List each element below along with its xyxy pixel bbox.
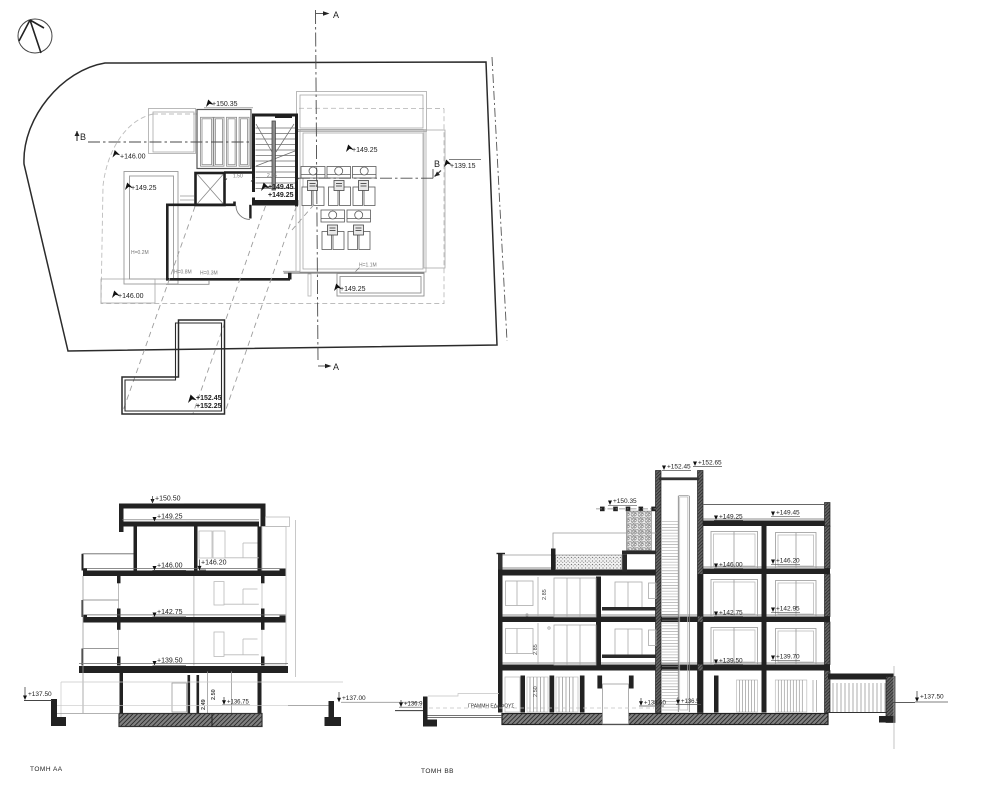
svg-text:+152.65: +152.65 <box>698 460 722 467</box>
svg-text:+142.75: +142.75 <box>719 610 743 617</box>
svg-text:+142.95: +142.95 <box>776 606 800 613</box>
svg-text:+150.50: +150.50 <box>155 496 181 503</box>
svg-text:+149.25: +149.25 <box>268 192 294 199</box>
svg-text:+146.00: +146.00 <box>157 563 183 570</box>
svg-text:2.55: 2.55 <box>267 173 277 179</box>
svg-text:+137.00: +137.00 <box>342 695 366 702</box>
svg-text:+146.00: +146.00 <box>120 154 146 161</box>
svg-text:+142.75: +142.75 <box>157 609 183 616</box>
svg-text:+150.35: +150.35 <box>212 101 238 108</box>
svg-text:+137.50: +137.50 <box>920 694 944 701</box>
svg-text:2.50: 2.50 <box>533 686 539 697</box>
svg-text:+149.45: +149.45 <box>268 184 294 191</box>
svg-text:+152.25: +152.25 <box>196 403 222 410</box>
svg-text:+139.50: +139.50 <box>157 658 183 665</box>
svg-text:2.85: 2.85 <box>542 589 548 600</box>
svg-text:+152.45: +152.45 <box>196 395 222 402</box>
svg-text:+139.50: +139.50 <box>719 658 743 665</box>
svg-text:+146.00: +146.00 <box>118 293 144 300</box>
svg-text:H=1.1M: H=1.1M <box>359 263 377 269</box>
svg-text:2.50: 2.50 <box>211 689 217 700</box>
svg-text:+136.75: +136.75 <box>227 700 250 706</box>
svg-text:+146.20: +146.20 <box>201 560 227 567</box>
svg-text:1.50: 1.50 <box>233 174 243 180</box>
svg-text:B: B <box>434 159 440 169</box>
svg-text:+137.50: +137.50 <box>28 691 52 698</box>
svg-text:+149.45: +149.45 <box>776 510 800 517</box>
svg-text:+152.45: +152.45 <box>667 464 691 471</box>
svg-text:+139.70: +139.70 <box>776 654 800 661</box>
svg-text:TOMH AA: TOMH AA <box>30 766 63 773</box>
svg-text:+136.9: +136.9 <box>404 702 423 708</box>
svg-text:+136.50: +136.50 <box>681 699 704 705</box>
svg-text:+149.25: +149.25 <box>352 147 378 154</box>
svg-text:B: B <box>80 132 86 142</box>
svg-text:H=0.8M: H=0.8M <box>174 270 192 276</box>
svg-text:+146.20: +146.20 <box>776 558 800 565</box>
svg-text:H=0.3M: H=0.3M <box>200 271 218 277</box>
svg-text:+149.25: +149.25 <box>340 286 366 293</box>
svg-text:A: A <box>333 10 339 20</box>
svg-text:2.85: 2.85 <box>533 644 539 655</box>
svg-text:ΓΡΑΜΜΗ ΕΔΑΦΟΥΣ: ΓΡΑΜΜΗ ΕΔΑΦΟΥΣ <box>468 704 514 710</box>
svg-text:+149.25: +149.25 <box>157 514 183 521</box>
svg-text:H=0.2M: H=0.2M <box>131 250 149 256</box>
svg-text:+138.60: +138.60 <box>644 701 667 707</box>
svg-text:+149.25: +149.25 <box>719 514 743 521</box>
svg-text:+150.35: +150.35 <box>613 498 637 505</box>
svg-text:2.49: 2.49 <box>201 699 207 710</box>
svg-text:+146.00: +146.00 <box>719 562 743 569</box>
svg-text:TOMH BB: TOMH BB <box>421 768 454 775</box>
svg-text:+149.25: +149.25 <box>131 185 157 192</box>
svg-text:A: A <box>333 362 339 372</box>
svg-text:+139.15: +139.15 <box>450 163 476 170</box>
